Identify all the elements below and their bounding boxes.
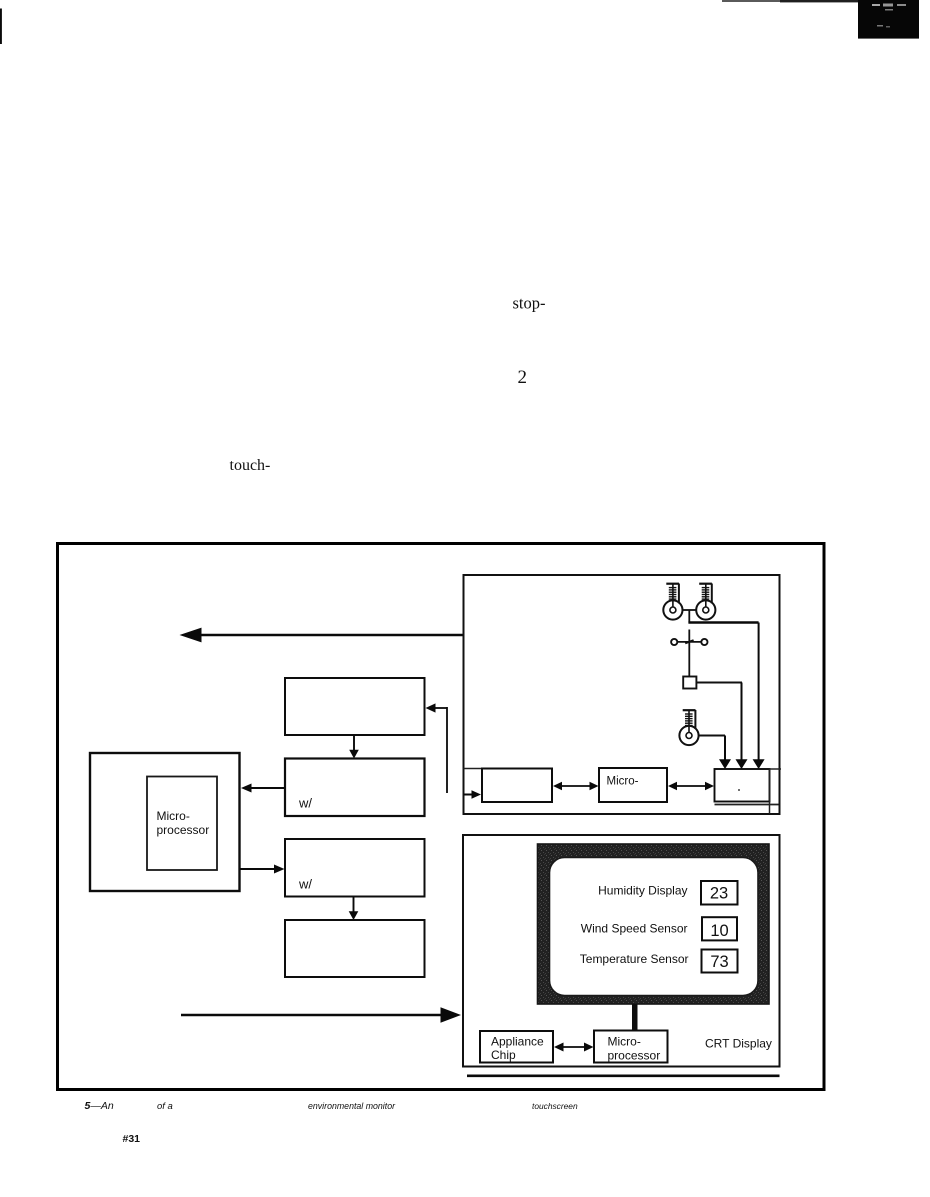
svg-text:Appliance: Appliance xyxy=(491,1035,544,1049)
svg-text:w/: w/ xyxy=(298,796,312,811)
svg-text:processor: processor xyxy=(157,823,210,837)
svg-text:Micro-: Micro- xyxy=(608,1035,641,1049)
svg-text:CRT Display: CRT Display xyxy=(705,1037,772,1051)
svg-text:environmental monitor: environmental monitor xyxy=(308,1101,396,1111)
svg-text:#31: #31 xyxy=(123,1133,141,1145)
svg-text:processor: processor xyxy=(608,1049,661,1063)
svg-text:Micro-: Micro- xyxy=(157,809,190,823)
svg-text:10: 10 xyxy=(710,922,728,940)
svg-text:73: 73 xyxy=(710,953,728,971)
svg-text:23: 23 xyxy=(710,885,728,903)
svg-text:Micro-: Micro- xyxy=(607,776,639,788)
svg-text:touch-: touch- xyxy=(230,457,271,474)
svg-text:Temperature Sensor: Temperature Sensor xyxy=(580,952,689,966)
svg-text:of a: of a xyxy=(157,1101,173,1112)
svg-text:Humidity Display: Humidity Display xyxy=(598,884,687,898)
svg-text:Wind Speed Sensor: Wind Speed Sensor xyxy=(581,922,688,936)
svg-text:5—An: 5—An xyxy=(85,1100,114,1112)
svg-text:w/: w/ xyxy=(298,877,312,892)
svg-text:stop-: stop- xyxy=(513,294,546,313)
svg-text:2: 2 xyxy=(518,367,528,388)
svg-text:touchscreen: touchscreen xyxy=(532,1101,578,1111)
svg-text:Chip: Chip xyxy=(491,1048,516,1062)
